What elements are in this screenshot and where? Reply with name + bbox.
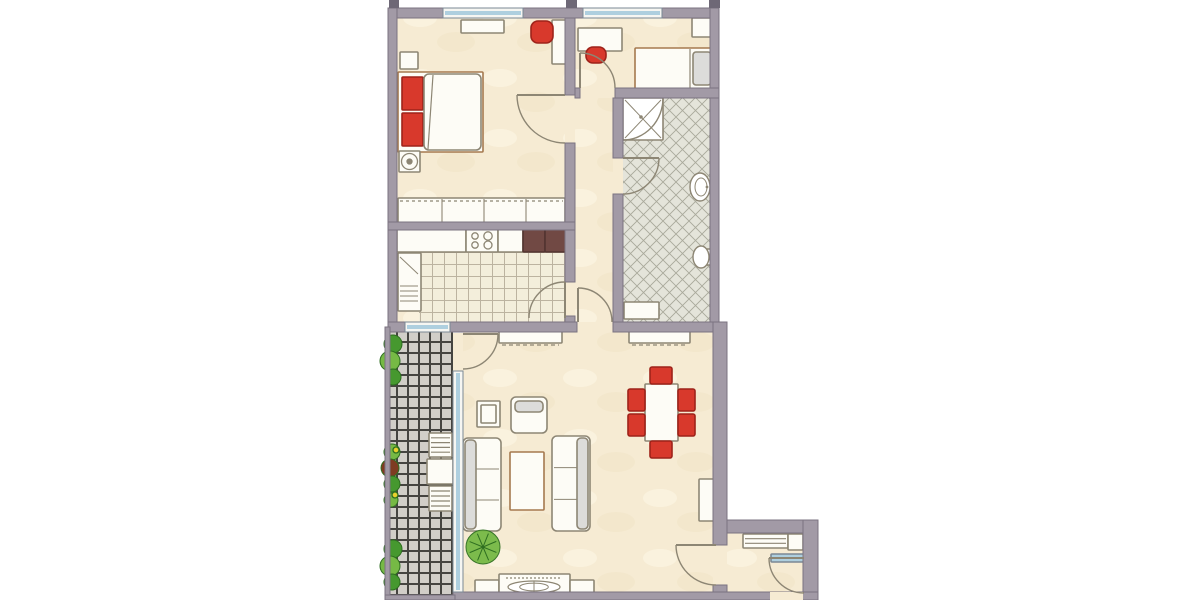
wall-entry-right (803, 520, 818, 600)
toilet (693, 246, 709, 268)
wall-living-top-a (388, 322, 405, 332)
floor-kitchen-tiles (419, 252, 565, 322)
office-chair-bedroom (531, 21, 553, 43)
stub-top-right (709, 0, 720, 8)
stub-top-mid (566, 0, 577, 8)
wall-bottom (453, 592, 818, 600)
wall-right-upper (710, 8, 719, 322)
fridge (398, 253, 421, 311)
kitchen-counter-left (397, 229, 466, 252)
dining-chair-right-2 (678, 414, 695, 436)
stub-top-left (389, 0, 399, 8)
wardrobe-row (398, 198, 565, 223)
dining-chair-left-2 (628, 414, 645, 436)
window-kitchen-balcony-glass (407, 325, 448, 329)
balcony-table (427, 459, 453, 484)
armchair-back (515, 401, 543, 412)
wardrobe-kids (692, 18, 712, 37)
side-table-top (481, 405, 496, 423)
nightstand (400, 52, 418, 69)
entry-box (788, 534, 803, 550)
window-bedroom-glass (445, 11, 521, 15)
wall-balcony-rail-left (385, 327, 390, 600)
window-kids-glass (585, 11, 660, 15)
wall-balcony-rail-bottom (385, 595, 455, 600)
bath-cabinet (624, 302, 659, 319)
balcony-chair-2 (429, 486, 452, 511)
wall-entry-top (727, 520, 807, 533)
floor-hallway (575, 88, 613, 322)
dining-chair-left-1 (628, 389, 645, 411)
wall-kids-bottom-b (615, 88, 719, 98)
gap-balcony-door (453, 333, 463, 371)
stove (466, 229, 498, 252)
bed-pillow-1 (402, 77, 423, 110)
wall-kitchen-hall-a (565, 230, 575, 282)
kitchen-counter-mid (498, 229, 523, 252)
flower-yellow-1 (393, 447, 399, 453)
shower-drain (639, 115, 643, 119)
gap-living-entry-door (713, 545, 727, 585)
kitchen-counter-dark-2 (545, 229, 566, 252)
wall-bedroom-kitchen (388, 222, 575, 230)
floor-plan (0, 0, 1200, 600)
wall-top-b (523, 8, 583, 18)
floor-plan-canvas (0, 0, 1200, 600)
gap-kids-door (580, 88, 615, 98)
wall-bath-left-b (613, 194, 623, 322)
wall-left (388, 8, 397, 327)
gap-bath-door (613, 158, 623, 194)
stool-knob (407, 159, 412, 164)
wall-bedroom-hall-a (565, 18, 575, 95)
window-living-balcony-glass (456, 373, 460, 590)
dining-chair-top (650, 367, 672, 384)
gap-bedroom-door (565, 95, 575, 143)
sofa-left-back (465, 440, 476, 529)
wall-kids-bottom-a (575, 88, 580, 98)
coffee-table (510, 452, 544, 510)
pillow-kids (693, 52, 711, 85)
wall-bath-left-a (613, 98, 623, 158)
wall-shelf-bedroom (461, 20, 504, 33)
dining-chair-right-1 (678, 389, 695, 411)
chair-kids (586, 47, 606, 63)
gap-kitchen-door (565, 282, 575, 316)
wall-living-top-b (450, 322, 577, 332)
kitchen-counter-dark-1 (523, 229, 545, 252)
wall-living-right (713, 322, 727, 545)
wall-living-top-c (613, 322, 727, 332)
gap-hall-living-door (577, 322, 613, 332)
balcony-chair-1 (429, 433, 452, 457)
wall-bedroom-hall-b (565, 143, 575, 222)
dining-chair-bottom (650, 441, 672, 458)
sofa-right-back (577, 438, 588, 529)
bed-pillow-2 (402, 113, 423, 146)
entry-shelf (743, 534, 788, 548)
flower-yellow-2 (392, 492, 398, 498)
sink-tap (706, 186, 709, 189)
dining-table (645, 384, 678, 441)
